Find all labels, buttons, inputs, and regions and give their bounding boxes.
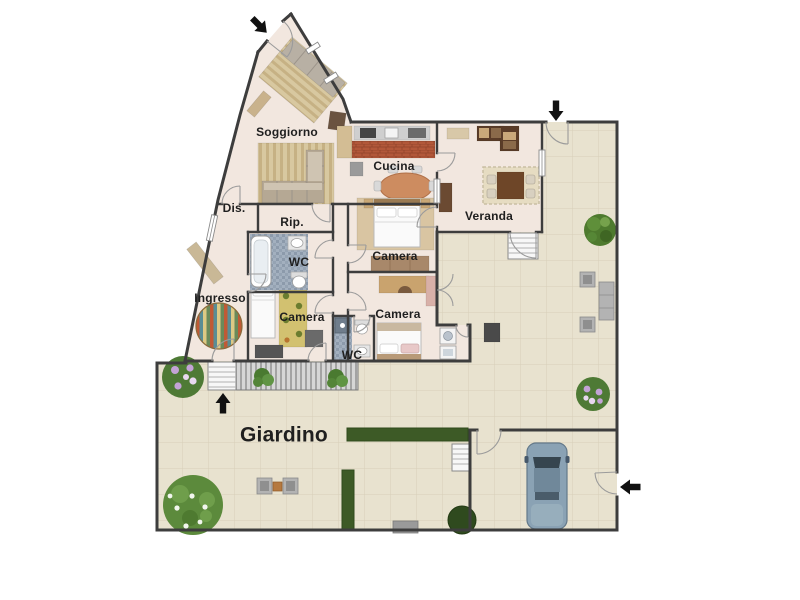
- double-bed: [374, 199, 420, 247]
- room-label-camera-2: Camera: [279, 310, 324, 324]
- room-label-cucina: Cucina: [373, 159, 414, 173]
- room-label-wc-2: WC: [342, 348, 363, 362]
- room-label-dis: Dis.: [223, 201, 246, 215]
- car-icon: [525, 443, 570, 529]
- window-icon: [539, 150, 545, 176]
- main-entrance-arrow-icon: [247, 13, 272, 38]
- window-icon: [434, 179, 440, 203]
- room-label-camera-1: Camera: [372, 249, 417, 263]
- wood-deck: [235, 362, 358, 390]
- veranda-cabinet: [439, 183, 452, 212]
- room-label-veranda: Veranda: [465, 209, 513, 223]
- room-label-wc-1: WC: [289, 255, 310, 269]
- flower-bush-large-icon: [163, 475, 223, 535]
- garden-side-table: [273, 482, 282, 491]
- room-label-soggiorno: Soggiorno: [256, 125, 318, 139]
- kitchen-cabinet: [337, 126, 352, 158]
- room-label-camera-3: Camera: [375, 307, 420, 321]
- terrace-stool: [484, 323, 500, 342]
- appliance-icon: [408, 128, 426, 138]
- laundry-fixtures: [440, 328, 456, 359]
- stove-icon: [360, 128, 376, 138]
- double-bed: [377, 323, 421, 360]
- sink-icon: [385, 128, 398, 138]
- driveway-stairs: [452, 444, 470, 471]
- low-dresser: [255, 345, 283, 358]
- garden-stairs: [208, 362, 236, 390]
- hedge-vertical: [342, 470, 354, 530]
- tree-icon: [584, 214, 616, 246]
- sink: [288, 236, 306, 250]
- wardrobe-pink: [426, 276, 436, 306]
- room-label-rip: Rip.: [280, 215, 303, 229]
- toilet: [291, 272, 307, 288]
- kitchen-tile-rug: [352, 141, 435, 158]
- room-label-giardino: Giardino: [240, 423, 328, 446]
- hedge-horizontal: [347, 428, 468, 441]
- terrace-gate-arrow-icon: [549, 101, 564, 122]
- floorplan-page: SoggiornoCucinaVerandaDis.Rip.WCIngresso…: [0, 0, 800, 600]
- veranda-table: [497, 172, 524, 199]
- kitchen-side-unit: [350, 162, 363, 176]
- dining-table: [380, 173, 432, 201]
- driveway-gate-arrow-icon: [620, 480, 641, 495]
- flower-bush-icon: [576, 377, 610, 411]
- room-label-ingresso: Ingresso: [194, 291, 246, 305]
- veranda-console: [447, 128, 469, 139]
- floorplan-drawing: SoggiornoCucinaVerandaDis.Rip.WCIngresso…: [0, 0, 800, 600]
